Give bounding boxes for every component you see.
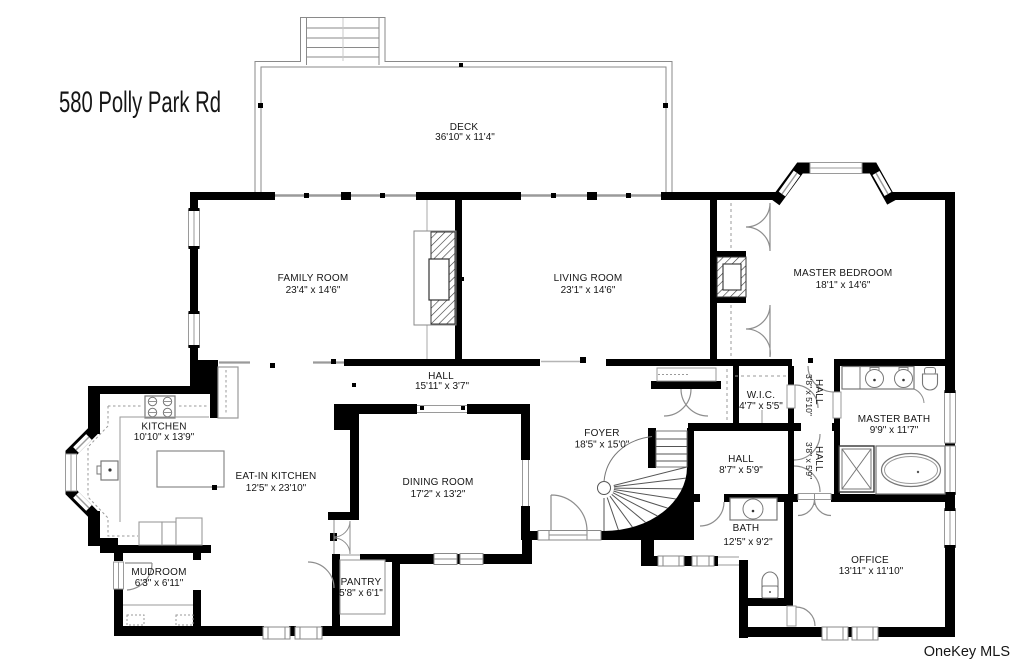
svg-text:580 Polly Park Rd: 580 Polly Park Rd <box>59 86 221 119</box>
svg-text:4'7" x 5'5": 4'7" x 5'5" <box>739 401 783 412</box>
svg-text:FOYER: FOYER <box>584 428 619 439</box>
svg-text:HALL: HALL <box>728 454 754 465</box>
svg-text:LIVING ROOM: LIVING ROOM <box>554 273 623 284</box>
svg-text:23'1" x 14'6": 23'1" x 14'6" <box>561 285 616 296</box>
svg-text:OFFICE: OFFICE <box>851 555 889 566</box>
svg-text:36'10" x 11'4": 36'10" x 11'4" <box>435 132 495 143</box>
svg-text:17'2" x 13'2": 17'2" x 13'2" <box>411 489 466 500</box>
svg-text:PANTRY: PANTRY <box>341 577 382 588</box>
svg-text:8'7" x 5'9": 8'7" x 5'9" <box>719 465 763 476</box>
svg-text:18'5" x 15'0": 18'5" x 15'0" <box>575 440 630 451</box>
svg-text:12'5" x 23'10": 12'5" x 23'10" <box>246 483 307 494</box>
svg-text:6'3" x 6'11": 6'3" x 6'11" <box>135 578 184 589</box>
svg-text:DINING ROOM: DINING ROOM <box>402 477 473 488</box>
svg-text:13'11" x 11'10": 13'11" x 11'10" <box>839 566 904 577</box>
svg-text:5'8" x 6'1": 5'8" x 6'1" <box>339 588 383 599</box>
svg-text:18'1" x 14'6": 18'1" x 14'6" <box>816 280 871 291</box>
svg-text:12'5" x 9'2": 12'5" x 9'2" <box>723 537 773 548</box>
svg-text:FAMILY ROOM: FAMILY ROOM <box>278 273 349 284</box>
svg-text:W.I.C.: W.I.C. <box>747 390 775 401</box>
svg-text:10'10" x 13'9": 10'10" x 13'9" <box>134 432 195 443</box>
svg-text:MASTER BATH: MASTER BATH <box>858 414 931 425</box>
svg-text:MASTER BEDROOM: MASTER BEDROOM <box>794 268 893 279</box>
svg-text:15'11" x 3'7": 15'11" x 3'7" <box>415 381 470 392</box>
svg-text:MUDROOM: MUDROOM <box>131 567 186 578</box>
svg-text:KITCHEN: KITCHEN <box>141 422 186 433</box>
svg-text:BATH: BATH <box>733 523 760 534</box>
svg-text:23'4" x 14'6": 23'4" x 14'6" <box>286 285 341 296</box>
svg-text:3'8" x 5'9": 3'8" x 5'9" <box>804 442 814 479</box>
svg-text:OneKey MLS: OneKey MLS <box>924 644 1010 660</box>
svg-text:9'9" x 11'7": 9'9" x 11'7" <box>870 425 919 436</box>
svg-text:3'8" x 5'10": 3'8" x 5'10" <box>804 374 814 416</box>
svg-text:EAT-IN KITCHEN: EAT-IN KITCHEN <box>236 471 317 482</box>
